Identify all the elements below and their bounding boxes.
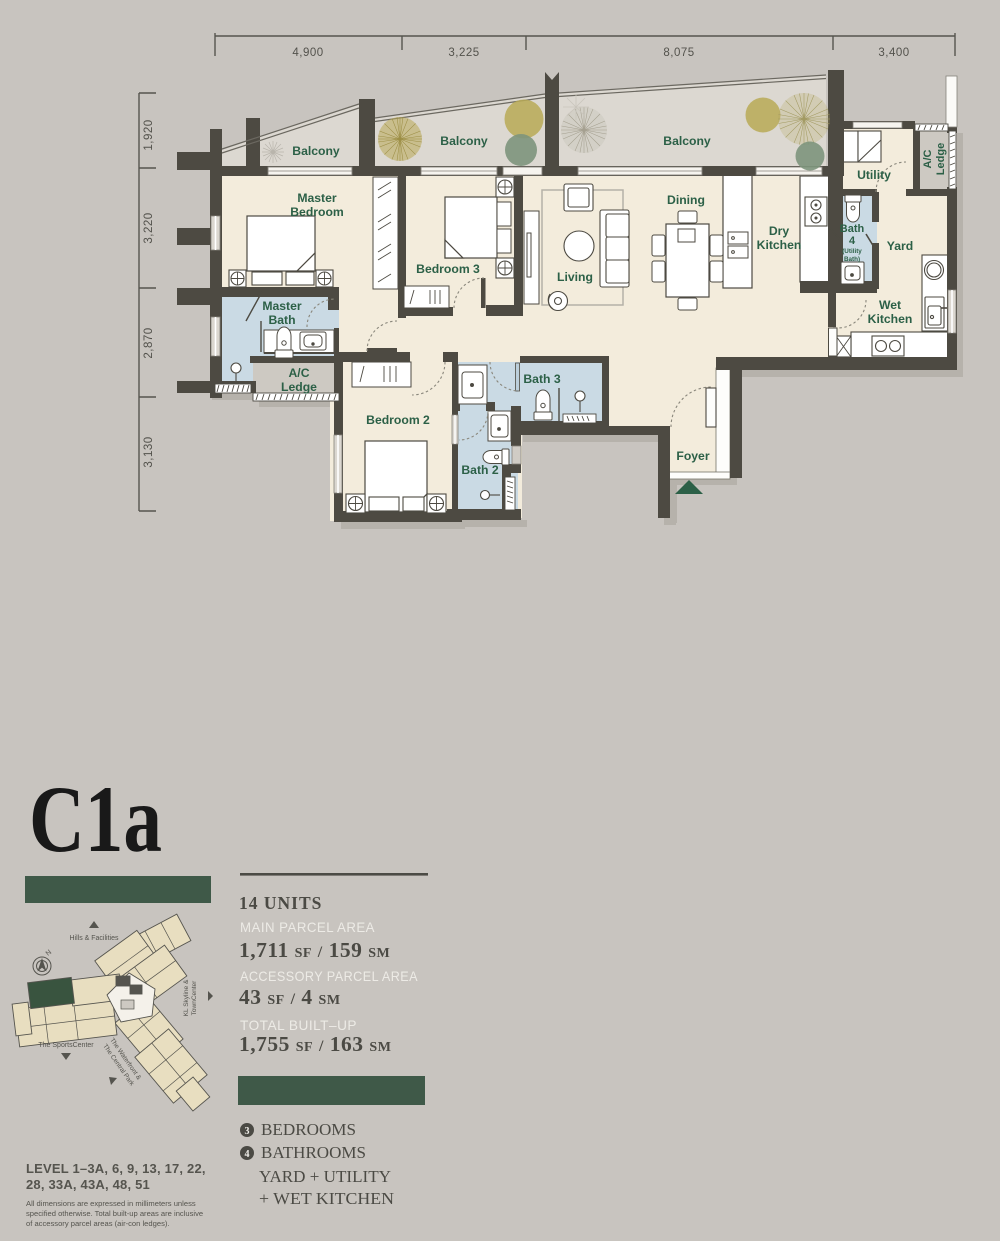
svg-text:Dry: Dry	[769, 224, 790, 238]
svg-text:1,755 SF / 163 SM: 1,755 SF / 163 SM	[239, 1032, 391, 1056]
svg-text:Balcony: Balcony	[292, 144, 340, 158]
svg-text:Balcony: Balcony	[663, 134, 711, 148]
svg-text:All dimensions are expressed i: All dimensions are expressed in millimet…	[26, 1199, 196, 1208]
svg-text:3,225: 3,225	[448, 47, 479, 59]
svg-text:2,870: 2,870	[143, 327, 155, 358]
svg-text:TOTAL BUILT–UP: TOTAL BUILT–UP	[240, 1017, 357, 1033]
svg-text:3,130: 3,130	[143, 436, 155, 467]
svg-text:ACCESSORY PARCEL AREA: ACCESSORY PARCEL AREA	[240, 968, 418, 984]
svg-text:Bedroom 3: Bedroom 3	[416, 262, 480, 276]
svg-text:Utility: Utility	[857, 168, 891, 182]
svg-text:28, 33A, 43A, 48, 51: 28, 33A, 43A, 48, 51	[26, 1177, 150, 1192]
svg-text:4: 4	[245, 1149, 250, 1160]
svg-text:Ledge: Ledge	[935, 143, 947, 175]
svg-text:MAIN PARCEL AREA: MAIN PARCEL AREA	[240, 919, 375, 935]
svg-text:Hills & Facilities: Hills & Facilities	[69, 935, 119, 942]
svg-text:3,220: 3,220	[143, 212, 155, 243]
svg-text:Bath: Bath	[268, 313, 295, 327]
svg-text:KL Skyline &: KL Skyline &	[183, 979, 190, 1016]
svg-text:+ WET KITCHEN: + WET KITCHEN	[259, 1189, 394, 1208]
svg-text:C1a: C1a	[29, 766, 162, 872]
svg-text:Bath): Bath)	[844, 256, 860, 263]
svg-text:Bath 3: Bath 3	[523, 372, 560, 386]
svg-text:Foyer: Foyer	[676, 449, 709, 463]
svg-text:4,900: 4,900	[292, 47, 323, 59]
svg-text:Bath: Bath	[840, 223, 865, 235]
svg-text:A/C: A/C	[922, 149, 934, 168]
svg-text:3,400: 3,400	[878, 47, 909, 59]
svg-text:Living: Living	[557, 270, 593, 284]
svg-text:Kitchen: Kitchen	[757, 238, 802, 252]
svg-text:1,711 SF / 159 SM: 1,711 SF / 159 SM	[239, 938, 390, 962]
svg-text:14 UNITS: 14 UNITS	[239, 893, 322, 913]
svg-text:Wet: Wet	[879, 298, 901, 312]
svg-text:4: 4	[849, 235, 856, 247]
svg-text:specified otherwise. Total bui: specified otherwise. Total built-up area…	[26, 1209, 203, 1218]
svg-text:LEVEL 1–3A, 6, 9, 13, 17, 22,: LEVEL 1–3A, 6, 9, 13, 17, 22,	[26, 1161, 206, 1176]
svg-text:8,075: 8,075	[663, 47, 694, 59]
svg-text:Bath 2: Bath 2	[461, 463, 498, 477]
svg-text:The SportsCenter: The SportsCenter	[38, 1042, 94, 1049]
svg-text:BEDROOMS: BEDROOMS	[261, 1120, 356, 1139]
svg-text:BATHROOMS: BATHROOMS	[261, 1143, 366, 1162]
svg-text:Dining: Dining	[667, 193, 705, 207]
svg-text:Kitchen: Kitchen	[868, 312, 913, 326]
svg-text:of accessory parcel areas (air: of accessory parcel areas (air-con ledge…	[26, 1219, 170, 1228]
svg-text:Yard: Yard	[887, 239, 913, 253]
svg-text:YARD + UTILITY: YARD + UTILITY	[259, 1167, 391, 1186]
svg-text:A/C: A/C	[289, 366, 310, 380]
svg-text:TownCenter: TownCenter	[191, 980, 198, 1016]
svg-text:Bedroom: Bedroom	[290, 205, 344, 219]
svg-text:3: 3	[245, 1126, 250, 1137]
svg-text:1,920: 1,920	[143, 119, 155, 150]
svg-text:(Utility: (Utility	[842, 248, 862, 255]
svg-text:Master: Master	[297, 191, 337, 205]
svg-text:Bedroom 2: Bedroom 2	[366, 413, 430, 427]
svg-text:Ledge: Ledge	[281, 380, 317, 394]
svg-text:Balcony: Balcony	[440, 134, 488, 148]
svg-text:Master: Master	[262, 299, 302, 313]
